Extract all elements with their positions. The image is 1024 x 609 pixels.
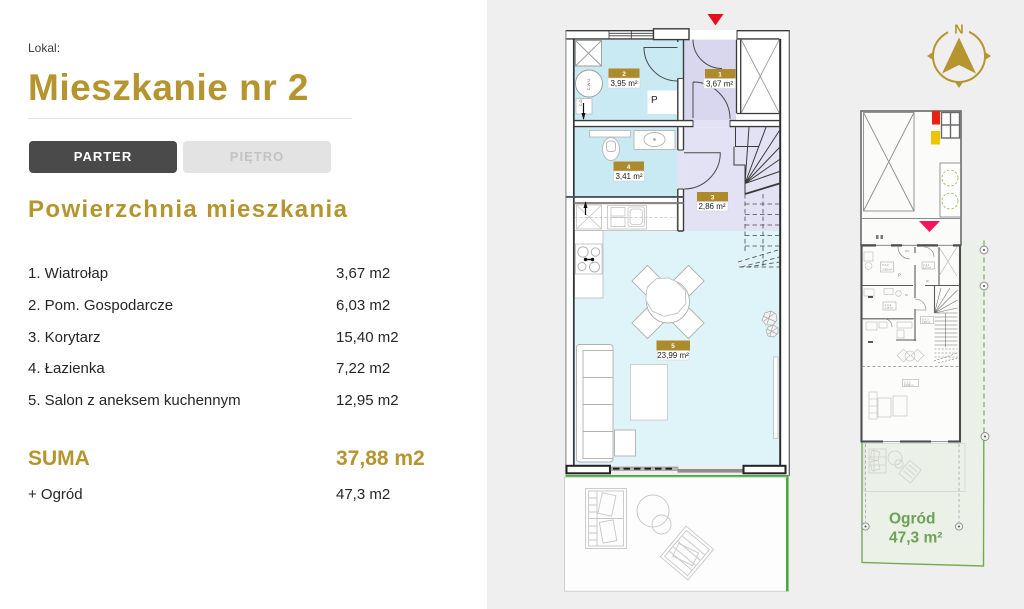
svg-text:2,86 m²: 2,86 m²	[922, 321, 930, 324]
svg-text:23,99 m²: 23,99 m²	[904, 384, 914, 387]
svg-text:C.O.: C.O.	[579, 99, 583, 106]
svg-text:Ogród: Ogród	[889, 511, 936, 528]
svg-text:3,15 m²: 3,15 m²	[885, 307, 893, 310]
svg-text:5: 5	[671, 343, 675, 350]
svg-text:2,86 m²: 2,86 m²	[698, 202, 725, 211]
svg-text:N: N	[954, 22, 963, 37]
svg-text:3,41 m²: 3,41 m²	[615, 172, 642, 181]
svg-text:P: P	[651, 95, 658, 106]
svg-text:WC: WC	[905, 249, 909, 253]
svg-text:2: 2	[622, 71, 626, 78]
svg-text:1: 1	[718, 71, 722, 78]
svg-text:23,99 m²: 23,99 m²	[657, 351, 689, 360]
svg-text:3,95 m²: 3,95 m²	[610, 79, 637, 88]
svg-text:47,3 m²: 47,3 m²	[889, 530, 942, 547]
svg-text:3: 3	[711, 194, 715, 201]
svg-text:2 2.2: 2 2.2	[882, 263, 889, 267]
svg-text:3,98 m²: 3,98 m²	[882, 268, 892, 272]
svg-text:4: 4	[627, 164, 631, 171]
svg-text:P: P	[898, 273, 901, 278]
svg-text:3,67 m²: 3,67 m²	[923, 267, 931, 270]
svg-text:3,67 m²: 3,67 m²	[706, 79, 733, 88]
svg-text:C.W.U.: C.W.U.	[586, 78, 591, 91]
